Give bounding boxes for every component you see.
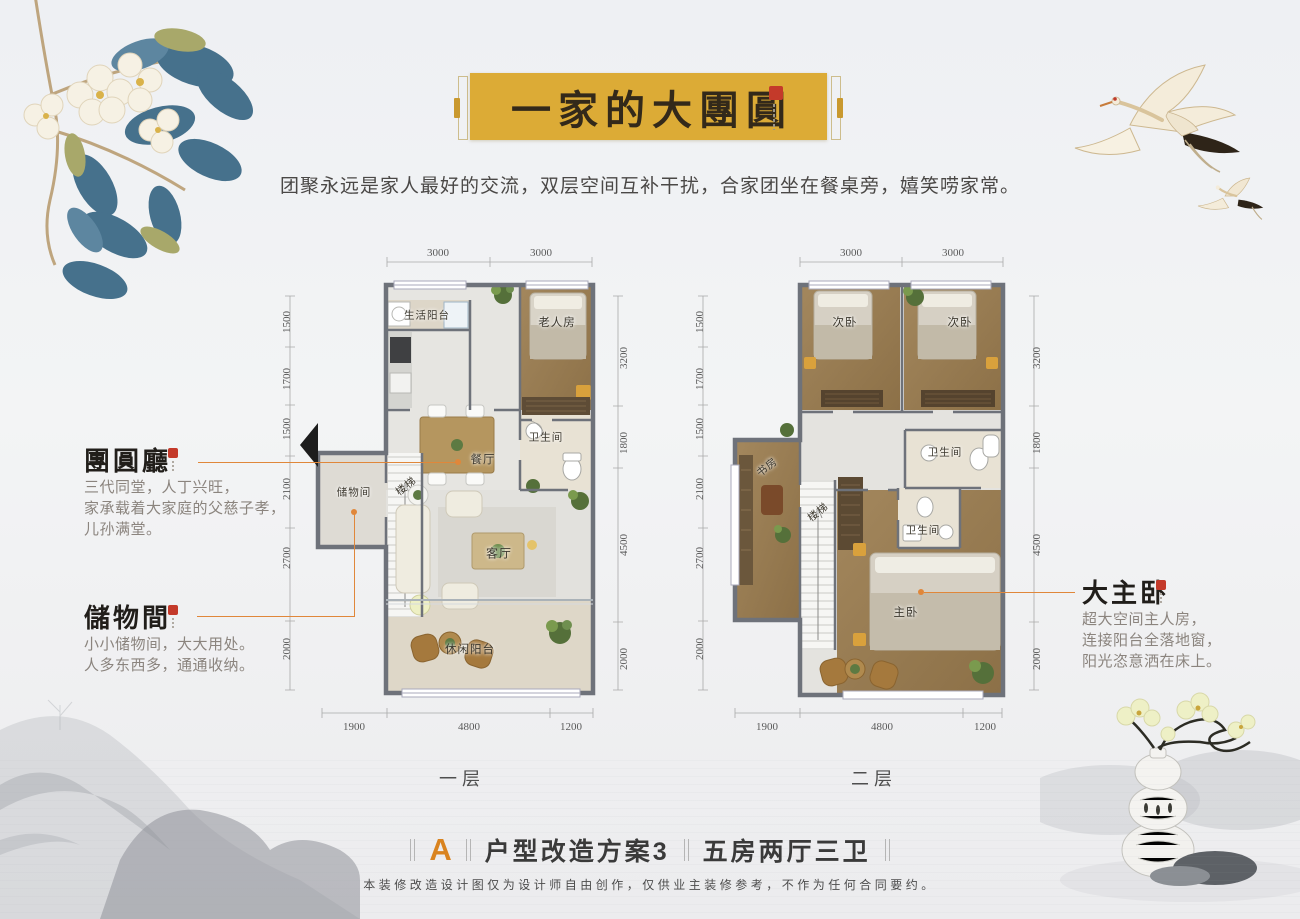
floor2-dim: 1200	[974, 721, 996, 733]
annotation-master-seal-icon	[1156, 580, 1166, 590]
leader-dot-storage	[351, 509, 357, 515]
floor1-room-dining: 餐厅	[471, 451, 496, 467]
floor2-dim: 4800	[871, 721, 893, 733]
floor2-dim: 1500	[694, 418, 706, 440]
floor1-dim: 4500	[618, 534, 630, 556]
leader-dot-reunion-hall	[455, 459, 461, 465]
floor1-dim: 3200	[618, 347, 630, 369]
floor2-room-master: 主卧	[894, 604, 919, 620]
floor1-dim: 2700	[281, 547, 293, 569]
floor2-dim: 1500	[694, 311, 706, 333]
annotation-line: 家承载着大家庭的父慈子孝，	[84, 498, 286, 519]
floor1-entry-marker	[300, 423, 318, 467]
floor2-dim: 2100	[694, 478, 706, 500]
separator-bars	[684, 839, 689, 861]
annotation-reunion-hall-seal-tail	[172, 461, 174, 473]
page-title: 一家的大團圓	[504, 78, 793, 136]
floor1-dim: 1500	[281, 418, 293, 440]
scheme-title: 户型改造方案3	[485, 832, 670, 868]
floor1-room-living: 客厅	[486, 545, 512, 562]
banner-seal-icon	[769, 86, 783, 100]
floor2-master-furniture	[853, 543, 1000, 650]
floor2-dim: 1900	[756, 721, 778, 733]
annotation-storage-seal-tail	[172, 618, 174, 630]
separator-bars	[410, 839, 415, 861]
floor1-label: 一层	[439, 765, 485, 791]
floor1-room-storage: 储物间	[337, 485, 372, 500]
annotation-line: 人多东西多，通通收纳。	[84, 655, 255, 676]
annotation-storage-title: 儲物間	[84, 604, 171, 634]
floor1-dim: 1200	[560, 721, 582, 733]
annotation-reunion-hall-seal-icon	[168, 448, 178, 458]
floor1-dim: 1700	[281, 368, 293, 390]
banner-scroll-knob-left	[454, 98, 460, 118]
floor2-dim: 1700	[694, 368, 706, 390]
separator-bars	[885, 839, 890, 861]
floor1-dim: 1500	[281, 311, 293, 333]
floor1-room-leisure-balcony: 休闲阳台	[445, 641, 495, 657]
annotation-line: 三代同堂，人丁兴旺，	[84, 477, 286, 498]
scheme-letter: A	[429, 832, 451, 868]
floor1-room-life-balcony: 生活阳台	[404, 308, 450, 323]
crane-large	[1075, 65, 1240, 172]
floor2-room-bedroom-b: 次卧	[948, 314, 973, 330]
floor1-dim: 1800	[618, 432, 630, 454]
floor2-dim: 3000	[840, 247, 862, 259]
annotation-line: 儿孙满堂。	[84, 519, 286, 540]
floor2-closet	[838, 477, 863, 550]
floor1-dim: 1900	[343, 721, 365, 733]
leader-line-reunion-hall	[198, 462, 456, 463]
floor2-dim: 3200	[1031, 347, 1043, 369]
banner-seal-caption	[773, 104, 775, 130]
floor2-dim: 2000	[1031, 648, 1043, 670]
floor2-dim: 3000	[942, 247, 964, 259]
leader-dot-master	[918, 589, 924, 595]
floor2-room-bedroom-a: 次卧	[833, 314, 858, 330]
annotation-reunion-hall-body: 三代同堂，人丁兴旺， 家承载着大家庭的父慈子孝， 儿孙满堂。	[84, 477, 286, 540]
floor2-plan-drawing	[683, 245, 1053, 720]
annotation-master-body: 超大空间主人房， 连接阳台全落地窗， 阳光恣意洒在床上。	[1082, 609, 1222, 672]
annotation-line: 小小储物间，大大用处。	[84, 634, 255, 655]
banner-scroll-knob-right	[837, 98, 843, 118]
flower-branch-illustration	[0, 0, 270, 310]
annotation-storage-body: 小小储物间，大大用处。 人多东西多，通通收纳。	[84, 634, 255, 676]
subtitle: 团聚永远是家人最好的交流，双层空间互补干扰，合家团坐在餐桌旁，嬉笑唠家常。	[0, 171, 1300, 198]
leader-line-storage-h	[197, 616, 354, 617]
annotation-reunion-hall: 團圓廳	[84, 441, 171, 478]
annotation-line: 阳光恣意洒在床上。	[1082, 651, 1222, 672]
scheme-subtitle: 五房两厅三卫	[703, 832, 871, 868]
annotation-storage-seal-icon	[168, 605, 178, 615]
floor1-dim: 3000	[427, 247, 449, 259]
leader-line-master	[924, 592, 1075, 593]
leader-line-storage-v	[354, 514, 355, 617]
floor2-room-bath-lower: 卫生间	[906, 523, 941, 538]
floor1-room-elder: 老人房	[538, 314, 576, 330]
annotation-line: 连接阳台全落地窗，	[1082, 630, 1222, 651]
poster: 一家的大團圓 团聚永远是家人最好的交流，双层空间互补干扰，合家团坐在餐桌旁，嬉笑…	[0, 0, 1300, 919]
floor1-room-bathroom: 卫生间	[529, 430, 564, 445]
floor1-dim: 4800	[458, 721, 480, 733]
annotation-storage: 儲物間	[84, 598, 171, 635]
floor1-dim: 2000	[618, 648, 630, 670]
floor2-dim: 2000	[694, 638, 706, 660]
scheme-bar: A 户型改造方案3 五房两厅三卫	[0, 832, 1300, 868]
floor2-dim: 2700	[694, 547, 706, 569]
floor1-dining-set	[420, 405, 494, 485]
floor2-room-bath-upper: 卫生间	[928, 445, 963, 460]
annotation-reunion-hall-title: 團圓廳	[84, 447, 171, 477]
annotation-master: 大主卧	[1082, 573, 1169, 610]
floor2-dim: 1800	[1031, 432, 1043, 454]
annotation-master-seal-tail	[1160, 593, 1162, 605]
separator-bars	[466, 839, 471, 861]
floor2-label: 二层	[851, 765, 897, 791]
floor2-dim: 4500	[1031, 534, 1043, 556]
floor1-dim: 2000	[281, 638, 293, 660]
disclaimer: 本装修改造设计图仅为设计师自由创作，仅供业主装修参考，不作为任何合同要约。	[0, 876, 1300, 893]
annotation-line: 超大空间主人房，	[1082, 609, 1222, 630]
floor1-dim: 3000	[530, 247, 552, 259]
